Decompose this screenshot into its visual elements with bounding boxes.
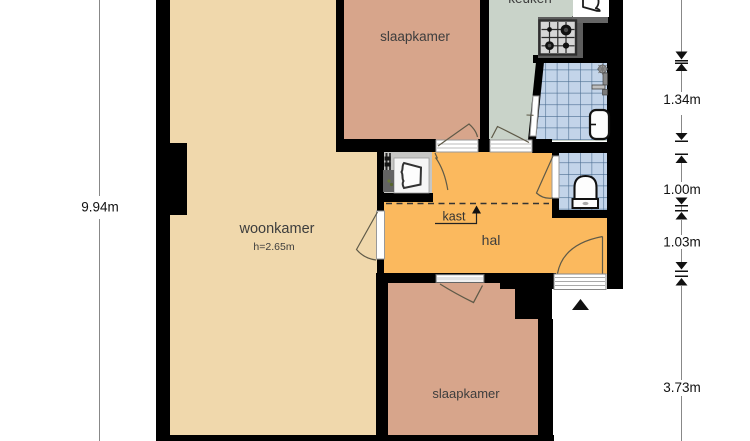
svg-text:slaapkamer: slaapkamer (380, 29, 450, 44)
svg-text:hal: hal (482, 232, 501, 248)
svg-text:9.94m: 9.94m (81, 200, 119, 215)
svg-text:woonkamer: woonkamer (239, 221, 315, 237)
svg-text:h=2.65m: h=2.65m (253, 241, 294, 253)
svg-text:slaapkamer: slaapkamer (432, 386, 500, 401)
svg-text:1.03m: 1.03m (663, 235, 701, 250)
svg-text:keuken: keuken (508, 0, 552, 6)
svg-text:3.73m: 3.73m (663, 380, 701, 395)
svg-text:1.00m: 1.00m (663, 182, 701, 197)
svg-text:kast: kast (443, 210, 466, 224)
svg-text:1.34m: 1.34m (663, 92, 701, 107)
